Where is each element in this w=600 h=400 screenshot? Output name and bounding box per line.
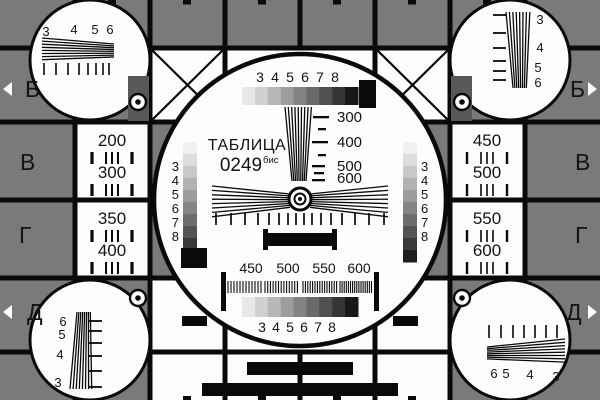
corner-label-bottom-left: 3 [54, 375, 61, 390]
resolution-tick-group [492, 262, 494, 274]
grayscale-strip-bottom [268, 297, 281, 317]
grayscale-strip-left [183, 226, 197, 239]
left-strip-label: 5 [172, 187, 179, 202]
grayscale-strip-top [281, 87, 294, 105]
table-title-word: ТАБЛИЦА [208, 137, 286, 154]
wedge-ticks-bottom-left [89, 330, 102, 332]
row-marker-left-b: Б [25, 76, 40, 102]
resolution-tick-group [466, 184, 468, 196]
row-marker-left-g: Г [19, 222, 32, 248]
row-marker-right-v: В [575, 149, 590, 175]
bottom-grayscale-label: 4 [272, 319, 280, 335]
center-frequency-wedge [301, 107, 302, 181]
bottom-black-bar-long [202, 383, 398, 396]
top-grayscale-label: 4 [271, 69, 279, 85]
right-strip-label: 7 [421, 215, 428, 230]
resolution-tick-group [486, 184, 488, 196]
needle-pulse-bar [266, 233, 334, 246]
top-grayscale-label: 7 [316, 69, 324, 85]
wedge-ticks-top-left [55, 63, 57, 75]
center-tick-row-right [354, 213, 356, 225]
resolution-tick-group [486, 262, 488, 274]
bottom-grayscale-label: 6 [300, 319, 308, 335]
grayscale-strip-left [183, 178, 197, 191]
resolution-label: 600 [473, 241, 501, 260]
needle-pulse-cap [263, 229, 268, 250]
resolution-tick-group [480, 230, 482, 242]
resolution-tick-group [480, 184, 482, 196]
wedge-scale-dash [312, 141, 328, 143]
resolution-tick-group [480, 152, 482, 164]
wedge-ticks-top-left [43, 63, 45, 75]
wedge-scale-dash [318, 128, 326, 130]
resolution-tick-group [117, 152, 119, 164]
corner-label-bottom-left: 4 [56, 347, 63, 362]
top-edge-digit-stub [183, 0, 191, 5]
burst-frequency-label: 450 [239, 260, 263, 276]
black-square [359, 80, 376, 108]
resolution-tick-group [130, 184, 133, 196]
top-edge-digit-stub [333, 0, 341, 5]
bottom-edge-digit-stub [183, 396, 191, 400]
grayscale-strip-left [183, 166, 197, 179]
wedge-scale-dash [313, 116, 329, 118]
wedge-scale-dash [318, 154, 326, 156]
center-tick-row-left [295, 213, 297, 225]
bottom-black-bar [247, 362, 353, 375]
right-strip-label: 5 [421, 187, 428, 202]
grayscale-strip-top [332, 87, 345, 105]
wedge-ticks-top-right [493, 32, 506, 34]
top-edge-digit-stub [483, 0, 491, 5]
wedge-ticks-top-right [493, 70, 506, 72]
bottom-edge-digit-stub [333, 396, 341, 400]
center-tick-row-left [268, 213, 270, 225]
needle-pulse-cap [332, 229, 337, 250]
black-square [181, 248, 207, 268]
burst-frequency-label: 550 [312, 260, 336, 276]
resolution-tick-group [486, 152, 488, 164]
resolution-tick-group [492, 184, 494, 196]
top-edge-digit-stub [408, 0, 416, 5]
burst-end-cap [374, 272, 379, 311]
center-frequency-wedge [298, 107, 299, 181]
wedge-ticks-bottom-right [556, 325, 558, 338]
top-edge-digit-stub [108, 0, 116, 5]
resolution-tick-group [130, 152, 133, 164]
resolution-tick-group [117, 262, 119, 274]
corner-bullseye-icon [135, 295, 141, 301]
resolution-tick-group [506, 184, 508, 196]
resolution-label: 500 [473, 163, 501, 182]
corner-label-top-right: 4 [536, 40, 543, 55]
resolution-tick-group [130, 262, 133, 274]
wedge-ticks-top-left [102, 63, 104, 75]
resolution-tick-group [90, 152, 93, 164]
bottom-grayscale-label: 3 [258, 319, 266, 335]
wedge-ticks-top-left [87, 63, 89, 75]
corner-label-bottom-left: 5 [58, 327, 65, 342]
resolution-tick-group [105, 152, 107, 164]
top-edge-digit-stub [258, 0, 266, 5]
wedge-ticks-top-right [493, 47, 506, 49]
resolution-tick-group [506, 230, 508, 242]
test-card-screen: 3456345665436543345678300400500600345678… [0, 0, 600, 400]
center-tick-row-left [215, 213, 217, 225]
wedge-ticks-bottom-left [89, 320, 102, 322]
corner-label-top-right: 6 [534, 75, 541, 90]
corner-bullseye-icon [459, 295, 465, 301]
resolution-label: 450 [473, 131, 501, 150]
wedge-ticks-bottom-left [89, 342, 102, 344]
grayscale-strip-bottom [281, 297, 294, 317]
resolution-tick-group [90, 184, 93, 196]
black-bar-small [393, 316, 418, 326]
wedge-ticks-bottom-left [89, 370, 102, 372]
corner-bullseye-icon [135, 99, 141, 105]
wedge-ticks-top-left [78, 63, 80, 75]
corner-bullseye-icon [459, 99, 465, 105]
wedge-ticks-top-right [493, 79, 506, 81]
grayscale-strip-top [255, 87, 268, 105]
center-tick-row-right [368, 213, 370, 225]
grayscale-strip-right [403, 166, 417, 179]
center-tick-row-right [341, 213, 343, 225]
grayscale-strip-top [319, 87, 332, 105]
resolution-tick-group [105, 262, 107, 274]
resolution-tick-group [492, 152, 494, 164]
burst-end-cap [221, 272, 226, 311]
center-tick-row-right [303, 213, 305, 225]
grayscale-strip-top [306, 87, 319, 105]
grayscale-strip-top [242, 87, 255, 105]
grayscale-strip-right [403, 250, 417, 263]
table-title-number: 0249 [220, 155, 262, 176]
resolution-tick-group [492, 230, 494, 242]
wedge-frequency-label: 600 [337, 170, 362, 187]
grayscale-strip-bottom [306, 297, 319, 317]
corner-label-bottom-right: 6 [490, 366, 497, 381]
resolution-tick-group [90, 262, 93, 274]
resolution-label: 550 [473, 209, 501, 228]
right-strip-label: 8 [421, 229, 428, 244]
wedge-ticks-top-right [493, 14, 506, 16]
top-grayscale-label: 8 [331, 69, 339, 85]
wedge-ticks-bottom-left [89, 355, 102, 357]
top-grayscale-label: 3 [256, 69, 264, 85]
corner-label-top-right: 5 [534, 60, 541, 75]
grayscale-strip-left [183, 190, 197, 203]
corner-label-bottom-right: 4 [526, 367, 533, 382]
grayscale-strip-right [403, 190, 417, 203]
test-card-0249: 3456345665436543345678300400500600345678… [0, 0, 600, 400]
resolution-tick-group [466, 152, 468, 164]
grayscale-strip-bottom [294, 297, 307, 317]
grayscale-strip-right [403, 214, 417, 227]
wedge-ticks-bottom-right [500, 325, 502, 338]
grayscale-strip-right [403, 226, 417, 239]
corner-label-top-left: 5 [91, 22, 98, 37]
burst-frequency-label: 600 [347, 260, 371, 276]
resolution-tick-group [111, 230, 113, 242]
resolution-tick-group [111, 262, 113, 274]
bottom-grayscale-label: 8 [328, 319, 336, 335]
center-tick-row-left [278, 213, 280, 225]
wedge-ticks-bottom-right [488, 325, 490, 338]
horizontal-wedge-right [310, 199, 388, 200]
wedge-ticks-bottom-left [89, 386, 102, 388]
resolution-tick-group [105, 184, 107, 196]
horizontal-wedge-left [212, 199, 290, 200]
left-strip-label: 6 [172, 201, 179, 216]
grayscale-strip-right [403, 178, 417, 191]
corner-label-top-right: 3 [536, 12, 543, 27]
center-tick-row-left [257, 213, 259, 225]
resolution-tick-group [480, 262, 482, 274]
burst-frequency-label: 500 [276, 260, 300, 276]
grayscale-strip-left [183, 142, 197, 155]
grayscale-strip-right [403, 142, 417, 155]
corner-label-top-left: 6 [106, 22, 113, 37]
resolution-label: 200 [98, 131, 126, 150]
grayscale-strip-bottom [345, 297, 358, 317]
wedge-ticks-top-left [108, 63, 110, 75]
resolution-tick-group [486, 230, 488, 242]
wedge-ticks-top-left [95, 63, 97, 75]
row-marker-left-d: Д [27, 299, 43, 325]
wedge-scale-dash [312, 165, 325, 167]
wedge-fan-top-right [523, 12, 524, 88]
top-grayscale-label: 5 [286, 69, 294, 85]
bottom-grayscale-label: 5 [286, 319, 294, 335]
bottom-edge-digit-stub [258, 396, 266, 400]
row-marker-right-b: Б [570, 76, 585, 102]
grayscale-strip-bottom [332, 297, 345, 317]
resolution-label: 300 [98, 163, 126, 182]
resolution-tick-group [130, 230, 133, 242]
left-strip-label: 7 [172, 215, 179, 230]
grayscale-strip-bottom [242, 297, 255, 317]
grayscale-strip-left [183, 154, 197, 167]
center-tick-row-right [383, 213, 385, 225]
wedge-ticks-top-right [493, 60, 506, 62]
resolution-tick-group [111, 152, 113, 164]
corner-label-top-left: 3 [42, 24, 49, 39]
wedge-scale-dash [312, 179, 325, 181]
wedge-frequency-label: 300 [337, 109, 362, 126]
row-marker-right-d: Д [566, 299, 582, 325]
resolution-tick-group [506, 152, 508, 164]
row-marker-right-g: Г [575, 222, 588, 248]
grayscale-strip-left [183, 202, 197, 215]
left-strip-label: 4 [172, 173, 179, 188]
right-strip-label: 4 [421, 173, 428, 188]
left-strip-label: 8 [172, 229, 179, 244]
wedge-ticks-bottom-right [534, 325, 536, 338]
wedge-ticks-bottom-right [545, 325, 547, 338]
grayscale-strip-top [345, 87, 358, 105]
resolution-tick-group [506, 262, 508, 274]
resolution-tick-group [117, 230, 119, 242]
top-grayscale-label: 6 [301, 69, 309, 85]
wedge-frequency-label: 400 [337, 134, 362, 151]
center-tick-row-left [230, 213, 232, 225]
corner-label-top-left: 4 [70, 22, 77, 37]
center-tick-row-left [244, 213, 246, 225]
table-title-suffix: бис [263, 155, 279, 166]
black-bar-small [182, 316, 207, 326]
grayscale-strip-right [403, 238, 417, 251]
row-marker-left-v: В [20, 149, 35, 175]
wedge-scale-dash [314, 172, 324, 174]
resolution-tick-group [111, 184, 113, 196]
left-strip-label: 3 [172, 159, 179, 174]
grayscale-strip-top [294, 87, 307, 105]
center-tick-row-right [320, 213, 322, 225]
right-strip-label: 6 [421, 201, 428, 216]
center-tick-row-right [330, 213, 332, 225]
resolution-tick-group [90, 230, 93, 242]
wedge-ticks-bottom-right [512, 325, 514, 338]
resolution-label: 400 [98, 241, 126, 260]
resolution-tick-group [466, 262, 468, 274]
resolution-tick-group [466, 230, 468, 242]
wedge-ticks-bottom-right [523, 325, 525, 338]
corner-label-bottom-right: 5 [502, 366, 509, 381]
right-strip-label: 3 [421, 159, 428, 174]
grayscale-strip-right [403, 154, 417, 167]
grayscale-strip-left [183, 214, 197, 227]
bottom-edge-digit-stub [408, 396, 416, 400]
corner-label-bottom-right: 3 [552, 369, 559, 384]
resolution-tick-group [117, 184, 119, 196]
center-tick-row-right [311, 213, 313, 225]
grayscale-strip-right [403, 202, 417, 215]
center-bullseye-icon [289, 188, 311, 210]
resolution-tick-group [105, 230, 107, 242]
center-tick-row-left [287, 213, 289, 225]
bottom-grayscale-label: 7 [314, 319, 322, 335]
resolution-label: 350 [98, 209, 126, 228]
wedge-ticks-top-left [67, 63, 69, 75]
grayscale-strip-top [268, 87, 281, 105]
grayscale-strip-bottom [319, 297, 332, 317]
grayscale-strip-bottom [255, 297, 268, 317]
